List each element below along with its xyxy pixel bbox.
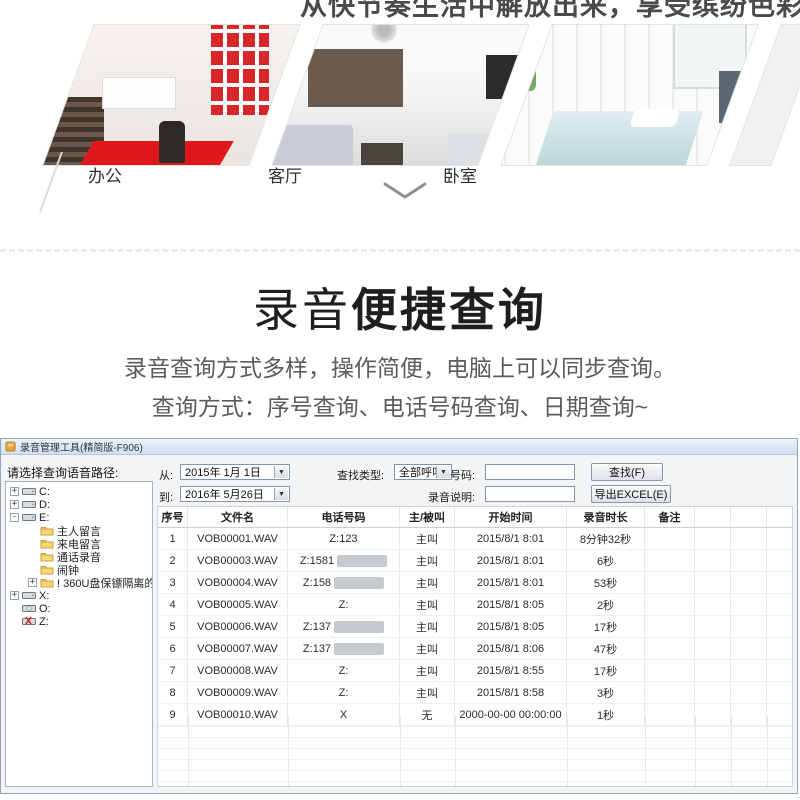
drive-icon [22,499,36,510]
table-cell [767,550,792,571]
tree-item-label: X: [39,590,49,602]
table-cell [767,572,792,593]
column-header: 序号 [158,507,188,527]
from-date-value: 2015年 1月 1日 [185,464,261,480]
phone-cell: Z: [288,660,400,681]
app-titlebar: 录音管理工具(精简版-F906) [1,439,797,455]
table-cell: VOB00005.WAV [188,594,288,615]
column-header: 电话号码 [288,507,400,527]
dropdown-arrow-icon[interactable]: ▼ [274,466,288,478]
dropdown-arrow-icon[interactable]: ▼ [436,466,450,478]
table-cell: 3 [158,572,188,593]
table-cell [645,660,695,681]
page: 从快节奏生活中解放出来，享受缤纷色彩绚丽生活 [0,0,800,800]
search-type-select[interactable]: 全部呼叫 ▼ [394,464,452,480]
tree-item[interactable]: +X: [6,589,152,602]
table-cell [731,594,767,615]
redaction-box [334,577,384,589]
table-cell [695,594,731,615]
table-cell [695,528,731,549]
tree-panel-label: 请选择查询语音路径: [7,464,118,481]
phone-cell: Z:137 [288,616,400,637]
table-cell [731,528,767,549]
chevron-down-icon [382,180,428,202]
table-cell [767,638,792,659]
phone-number: Z:1581 [300,555,334,567]
hero-label-office: 办公 [88,162,122,187]
hero-image-living-room [271,24,530,166]
table-cell [767,594,792,615]
tree-item-label: O: [39,603,51,615]
table-cell [695,572,731,593]
phone-cell: Z:1581 [288,550,400,571]
table-cell [645,528,695,549]
app-title: 录音管理工具(精简版-F906) [20,439,143,454]
table-cell [645,638,695,659]
table-row[interactable]: 2VOB00003.WAVZ:1581主叫2015/8/1 8:016秒 [158,550,792,572]
table-cell: 2秒 [567,594,645,615]
redaction-box [334,621,384,633]
disc-icon [22,603,36,614]
search-type-label: 查找类型: [337,467,384,483]
note-input[interactable] [485,486,575,502]
table-row[interactable]: 3VOB00004.WAVZ:158主叫2015/8/1 8:0153秒 [158,572,792,594]
tree-item[interactable]: O: [6,602,152,615]
phone-number: Z:123 [329,533,357,545]
table-cell: 主叫 [400,528,455,549]
column-header: 主/被叫 [400,507,455,527]
phone-cell: Z:137 [288,638,400,659]
from-date-select[interactable]: 2015年 1月 1日 ▼ [180,464,290,480]
hero-image-office [42,24,301,166]
table-cell: 8 [158,682,188,703]
table-cell [767,616,792,637]
tree-item-label: D: [39,499,50,511]
tree-item-label: E: [39,512,49,524]
table-cell: 2015/8/1 8:06 [455,638,567,659]
table-cell [731,616,767,637]
drive-icon [22,486,36,497]
phone-cell: Z: [288,682,400,703]
tree-item-label: ! 360U盘保镖隔离的文件 [57,575,153,591]
export-excel-button[interactable]: 导出EXCEL(E) [591,485,671,503]
table-cell: 2015/8/1 8:58 [455,682,567,703]
hero-label-bedroom: 卧室 [443,162,477,187]
table-cell: 6 [158,638,188,659]
table-cell: 2015/8/1 8:55 [455,660,567,681]
tree-item-label: Z: [39,616,49,628]
table-header-row: 序号文件名电话号码主/被叫开始时间录音时长备注 [158,507,792,528]
table-cell: VOB00008.WAV [188,660,288,681]
app-window: 录音管理工具(精简版-F906) 请选择查询语音路径: +C:+D:-E:主人留… [0,438,798,794]
expand-icon[interactable]: + [10,591,19,600]
table-cell [731,682,767,703]
folder-tree: +C:+D:-E:主人留言来电留言通话录音闹钟+! 360U盘保镖隔离的文件+X… [5,481,153,787]
table-row[interactable]: 1VOB00001.WAVZ:123主叫2015/8/1 8:018分钟32秒 [158,528,792,550]
table-cell [645,572,695,593]
app-icon [5,441,16,452]
to-label: 到: [159,489,173,505]
search-button[interactable]: 查找(F) [591,463,663,481]
phone-number: Z: [339,599,349,611]
table-cell: 7 [158,660,188,681]
table-cell [695,616,731,637]
table-cell: 2015/8/1 8:01 [455,528,567,549]
table-cell [645,594,695,615]
table-cell: VOB00009.WAV [188,682,288,703]
tree-item[interactable]: +D: [6,498,152,511]
table-cell: VOB00007.WAV [188,638,288,659]
phone-cell: Z: [288,594,400,615]
table-cell: 2 [158,550,188,571]
subtitle-line-1: 录音查询方式多样，操作简便，电脑上可以同步查询。 [0,349,800,388]
table-cell: 5 [158,616,188,637]
table-cell: 17秒 [567,616,645,637]
table-cell [731,638,767,659]
table-cell: 8分钟32秒 [567,528,645,549]
table-cell: 主叫 [400,638,455,659]
number-label: 号码: [450,467,475,483]
phone-number: Z: [339,687,349,699]
phone-number: Z:137 [303,643,331,655]
table-cell [645,682,695,703]
table-cell [731,660,767,681]
table-row[interactable]: 7VOB00008.WAVZ:主叫2015/8/1 8:5517秒 [158,660,792,682]
table-cell [731,550,767,571]
column-header: 备注 [645,507,695,527]
table-cell: 1 [158,528,188,549]
tree-item[interactable]: +C: [6,485,152,498]
expand-icon[interactable]: + [10,487,19,496]
table-cell: VOB00003.WAV [188,550,288,571]
table-cell: 主叫 [400,682,455,703]
table-cell: 2015/8/1 8:05 [455,594,567,615]
table-cell: 47秒 [567,638,645,659]
to-date-select[interactable]: 2016年 5月26日 ▼ [180,486,290,502]
column-header: 录音时长 [567,507,645,527]
redaction-box [337,555,387,567]
drive-icon [22,512,36,523]
table-cell: 53秒 [567,572,645,593]
column-header [695,507,731,527]
table-cell: 主叫 [400,660,455,681]
section-title-bold: 便捷查询 [351,284,547,336]
table-cell [645,550,695,571]
table-cell [695,638,731,659]
table-body: 1VOB00001.WAVZ:123主叫2015/8/1 8:018分钟32秒2… [158,528,792,726]
table-cell: 2015/8/1 8:05 [455,616,567,637]
table-cell: 主叫 [400,616,455,637]
table-cell [767,660,792,681]
table-cell: 主叫 [400,550,455,571]
tree-item[interactable]: Z: [6,615,152,628]
table-cell: VOB00004.WAV [188,572,288,593]
table-cell [767,682,792,703]
hero-image-row [68,24,800,166]
table-cell: 2015/8/1 8:01 [455,550,567,571]
table-cell: 6秒 [567,550,645,571]
column-header: 开始时间 [455,507,567,527]
expand-icon[interactable]: + [10,500,19,509]
tree-item[interactable]: +! 360U盘保镖隔离的文件 [6,576,152,589]
redaction-box [334,643,384,655]
to-date-value: 2016年 5月26日 [185,486,264,502]
table-row[interactable]: 8VOB00009.WAVZ:主叫2015/8/1 8:583秒 [158,682,792,704]
folder-icon [40,525,54,536]
table-cell [695,550,731,571]
table-cell: VOB00001.WAV [188,528,288,549]
drive-icon [22,590,36,601]
dropdown-arrow-icon[interactable]: ▼ [274,488,288,500]
phone-number: Z: [339,665,349,677]
table-cell: 3秒 [567,682,645,703]
hero-tagline: 从快节奏生活中解放出来，享受缤纷色彩绚丽生活 [300,0,800,23]
table-empty-grid [158,716,792,786]
column-header [731,507,767,527]
table-cell [767,528,792,549]
table-row[interactable]: 6VOB00007.WAVZ:137主叫2015/8/1 8:0647秒 [158,638,792,660]
table-cell [645,616,695,637]
folder-icon [40,551,54,562]
dashed-divider [0,249,800,252]
phone-cell: Z:158 [288,572,400,593]
folder-icon [40,564,54,575]
column-header: 文件名 [188,507,288,527]
table-cell: 主叫 [400,572,455,593]
table-cell: 17秒 [567,660,645,681]
folder-icon [40,577,54,588]
table-cell: VOB00006.WAV [188,616,288,637]
expand-icon[interactable]: + [28,578,37,587]
table-cell [695,660,731,681]
table-cell: 4 [158,594,188,615]
subtitle-line-2: 查询方式：序号查询、电话号码查询、日期查询~ [0,388,800,427]
phone-cell: Z:123 [288,528,400,549]
note-label: 录音说明: [428,489,475,505]
table-cell [695,682,731,703]
table-row[interactable]: 5VOB00006.WAVZ:137主叫2015/8/1 8:0517秒 [158,616,792,638]
section-title: 录音便捷查询 [0,274,800,340]
section-subtitle: 录音查询方式多样，操作简便，电脑上可以同步查询。 查询方式：序号查询、电话号码查… [0,349,800,427]
phone-number: Z:137 [303,621,331,633]
table-cell: 2015/8/1 8:01 [455,572,567,593]
tree-item-label: C: [39,486,50,498]
hero-image-bedroom [500,24,759,166]
collapse-icon[interactable]: - [10,513,19,522]
hero-label-living-room: 客厅 [268,162,302,187]
recordings-table: 序号文件名电话号码主/被叫开始时间录音时长备注 1VOB00001.WAVZ:1… [157,506,793,787]
number-input[interactable] [485,464,575,480]
drive-x-icon [22,616,36,627]
section-title-light: 录音 [253,284,351,336]
column-header [767,507,792,527]
table-cell: 主叫 [400,594,455,615]
table-cell [731,572,767,593]
folder-icon [40,538,54,549]
tree-item[interactable]: 通话录音 [6,550,152,563]
table-row[interactable]: 4VOB00005.WAVZ:主叫2015/8/1 8:052秒 [158,594,792,616]
from-label: 从: [159,467,173,483]
phone-number: Z:158 [303,577,331,589]
